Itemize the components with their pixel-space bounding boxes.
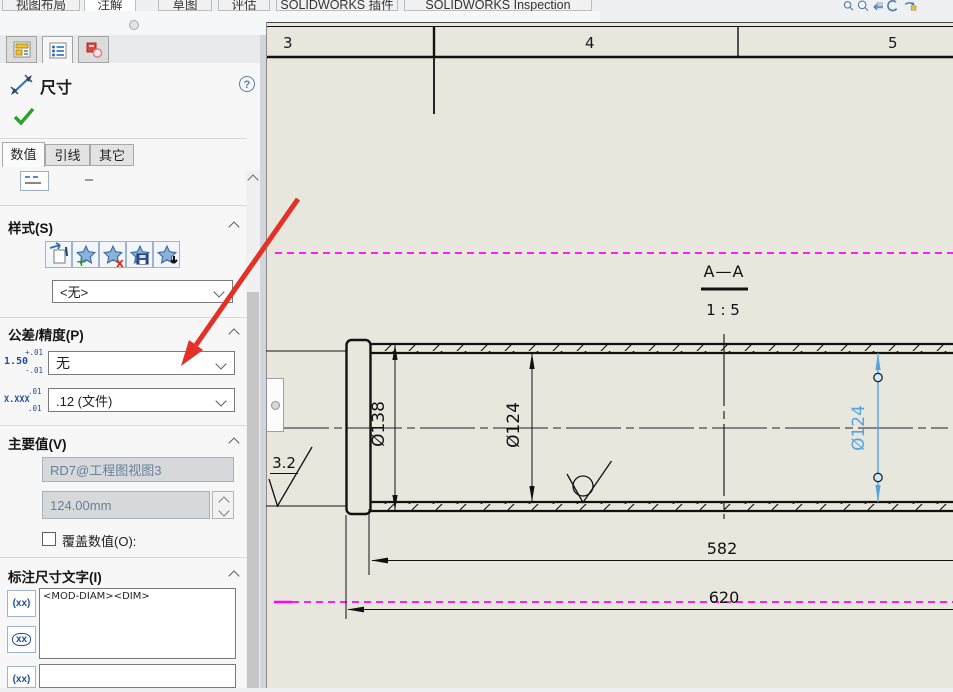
spinner-down-icon[interactable] <box>218 505 229 516</box>
featuremanager-tab[interactable] <box>6 36 37 63</box>
ribbon-expand-handle[interactable] <box>129 20 139 30</box>
override-value-checkbox[interactable] <box>42 532 56 546</box>
delete-style-button[interactable]: x <box>99 241 126 268</box>
dimension-icon <box>10 74 34 96</box>
primary-value-section-header[interactable]: 主要值(V) <box>8 433 67 453</box>
dimension-text-input-2[interactable] <box>39 664 236 688</box>
save-style-button[interactable] <box>126 241 153 268</box>
tab-solidworks-addins[interactable]: SOLIDWORKS 插件 <box>276 0 398 11</box>
scroll-up-button[interactable] <box>246 170 260 186</box>
zoom-fit-icon[interactable] <box>844 2 853 11</box>
dimension-drag-handle-top[interactable] <box>874 373 882 381</box>
zoom-to-area-icon[interactable] <box>858 1 868 11</box>
tab-leaders[interactable]: 引线 <box>45 144 90 166</box>
heads-up-view-toolbar <box>806 0 953 14</box>
zone-label: 3 <box>283 34 293 52</box>
rotate-view-icon[interactable] <box>888 1 897 11</box>
hatch-bottom <box>371 503 953 512</box>
style-section-header[interactable]: 样式(S) <box>8 217 53 237</box>
tab-annotation[interactable]: 注解 <box>84 0 136 11</box>
add-parenthesis-button-2[interactable]: (xx) <box>7 666 36 688</box>
zone-label: 5 <box>888 34 898 52</box>
tab-value[interactable]: 数值 <box>2 142 45 167</box>
dimension-620-text[interactable]: 620 <box>709 588 740 607</box>
dimension-name-field: RD7@工程图视图3 <box>42 457 234 482</box>
dimension-text-input[interactable]: <MOD-DIAM><DIM> <box>39 588 236 659</box>
view-settings-icon[interactable] <box>905 2 916 10</box>
surface-finish-value[interactable]: 3.2 <box>272 454 296 472</box>
splitter-handle-icon <box>271 401 280 410</box>
chevron-down-icon <box>215 358 226 369</box>
override-value-label: 覆盖数值(O): <box>62 531 136 550</box>
section-name[interactable]: A—A <box>704 262 745 281</box>
precision-value: .12 (文件) <box>56 391 112 410</box>
svg-text:x: x <box>116 256 124 270</box>
drawing-viewport: 3 4 5 A—A 1 : 5 3.2 Ø138 <box>266 22 953 688</box>
chevron-down-icon <box>215 395 226 406</box>
dimension-favorite-icon <box>20 171 49 191</box>
dimension-124-selected-text[interactable]: Ø124 <box>849 405 869 451</box>
add-style-button[interactable]: + <box>72 241 99 268</box>
propertymanager-tab[interactable] <box>42 36 73 64</box>
svg-text:+: + <box>76 255 87 270</box>
value-spinner <box>212 491 234 519</box>
dimxpertmanager-tab[interactable] <box>78 36 109 63</box>
dimension-138-text[interactable]: Ø138 <box>369 401 389 447</box>
tolerance-type-value: 无 <box>56 353 70 373</box>
manager-tab-bar <box>0 35 260 63</box>
previous-view-icon[interactable] <box>874 3 883 10</box>
panel-scrollbar[interactable] <box>246 170 260 688</box>
hatch-top <box>371 345 953 354</box>
section-scale[interactable]: 1 : 5 <box>706 301 740 319</box>
dimension-value-field: 124.00mm <box>42 491 210 519</box>
tolerance-type-icon: 1.50 +.01 -.01 <box>4 348 44 376</box>
apply-default-attributes-button[interactable] <box>45 241 72 268</box>
inspection-dimension-button[interactable]: xx <box>7 626 36 653</box>
precision-icon: X.XXX .01 .01 <box>4 387 44 415</box>
tab-solidworks-inspection[interactable]: SOLIDWORKS Inspection <box>404 0 592 11</box>
load-style-button[interactable] <box>153 241 180 268</box>
zone-label: 4 <box>585 34 595 52</box>
clipped-control <box>85 179 93 181</box>
dimension-drag-handle-bottom[interactable] <box>874 473 882 481</box>
tolerance-type-dropdown[interactable]: 无 <box>48 351 235 375</box>
tolerance-section-header[interactable]: 公差/精度(P) <box>8 324 84 344</box>
dimxpert-manager-icon <box>84 41 104 59</box>
style-preset-value: <无> <box>60 282 88 301</box>
oval-xx-icon: xx <box>12 633 31 646</box>
panel-splitter-tab[interactable] <box>267 378 284 432</box>
property-manager-icon <box>48 42 68 60</box>
tab-other[interactable]: 其它 <box>90 144 134 166</box>
precision-dropdown[interactable]: .12 (文件) <box>48 388 235 412</box>
style-preset-dropdown[interactable]: <无> <box>52 280 233 303</box>
add-parenthesis-button[interactable]: (xx) <box>7 590 36 617</box>
tab-sketch[interactable]: 草图 <box>158 0 212 11</box>
ok-button[interactable] <box>12 106 36 126</box>
help-icon[interactable]: ? <box>239 76 255 92</box>
feature-manager-icon <box>12 41 32 59</box>
dimension-582-text[interactable]: 582 <box>707 539 738 558</box>
chevron-down-icon <box>213 286 224 297</box>
dimension-text-section-header[interactable]: 标注尺寸文字(I) <box>8 566 102 586</box>
scrollbar-thumb[interactable] <box>247 292 259 688</box>
tab-view-layout[interactable]: 视图布局 <box>2 0 80 11</box>
panel-title: 尺寸 <box>40 74 72 98</box>
tab-evaluate[interactable]: 评估 <box>218 0 270 11</box>
dimension-124-text[interactable]: Ø124 <box>504 402 524 448</box>
